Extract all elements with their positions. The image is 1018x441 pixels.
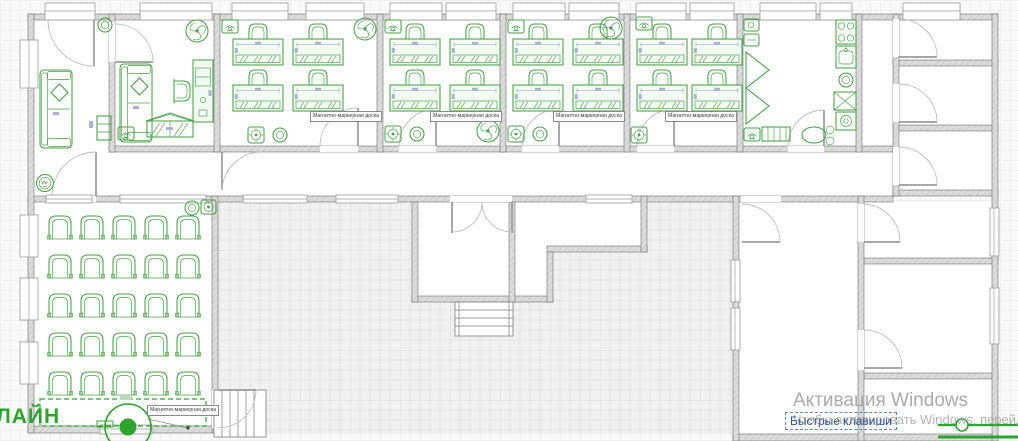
board-label[interactable]: Магнитно-маркерная доска xyxy=(310,111,382,122)
dimension-mark xyxy=(120,396,132,400)
camera-marker-dot[interactable] xyxy=(120,419,137,436)
side-stairs[interactable] xyxy=(214,390,266,437)
leader-dot xyxy=(186,426,189,429)
windows-activation-watermark: Активация Windows xyxy=(793,390,968,412)
floor-plan-stage: Магнитно-маркерная доска Магнитно-маркер… xyxy=(0,0,1018,441)
speaker-icon[interactable] xyxy=(37,175,54,192)
plan-corner-label[interactable]: ЛАЙН xyxy=(0,405,60,429)
sofa[interactable] xyxy=(40,70,72,148)
board-label[interactable]: Магнитно-маркерная доска xyxy=(553,111,625,122)
shortcuts-link[interactable]: Быстрые клавиши xyxy=(785,412,897,430)
entrance-stairs[interactable] xyxy=(455,302,513,336)
board-label[interactable]: Магнитно-маркерная доска xyxy=(430,111,502,122)
floor-plan-canvas[interactable] xyxy=(0,0,1018,441)
board-label[interactable]: Магнитно-маркерная доска xyxy=(665,111,737,122)
board-label[interactable]: Магнитно-маркерная доска xyxy=(147,405,219,416)
office-desk[interactable] xyxy=(193,60,213,122)
